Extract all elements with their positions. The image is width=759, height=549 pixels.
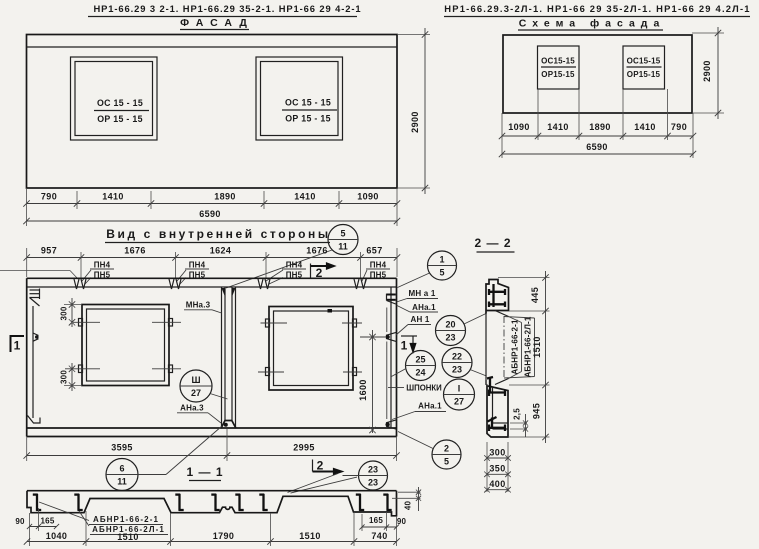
svg-text:I: I <box>458 383 461 393</box>
svg-text:945: 945 <box>532 403 542 419</box>
svg-text:5: 5 <box>444 457 449 467</box>
svg-text:657: 657 <box>366 246 382 256</box>
svg-text:ОС 15 - 15: ОС 15 - 15 <box>97 98 143 108</box>
svg-text:957: 957 <box>41 246 57 256</box>
svg-text:6590: 6590 <box>586 142 608 152</box>
svg-text:1090: 1090 <box>508 122 530 132</box>
svg-text:300: 300 <box>60 306 69 320</box>
svg-text:300: 300 <box>489 448 505 458</box>
svg-text:МНа.3: МНа.3 <box>186 301 211 310</box>
svg-text:1510: 1510 <box>532 336 542 358</box>
svg-text:ОС 15 - 15: ОС 15 - 15 <box>285 98 331 108</box>
svg-text:90: 90 <box>15 517 25 526</box>
svg-text:165: 165 <box>369 516 383 525</box>
svg-text:МН а 1: МН а 1 <box>409 289 436 298</box>
svg-text:2900: 2900 <box>410 111 420 133</box>
svg-text:ОР 15 - 15: ОР 15 - 15 <box>97 114 143 124</box>
svg-text:1676: 1676 <box>124 246 146 256</box>
svg-text:350: 350 <box>489 464 505 474</box>
svg-text:5: 5 <box>340 228 345 238</box>
svg-text:2 — 2: 2 — 2 <box>474 236 511 250</box>
svg-text:20: 20 <box>445 319 455 329</box>
svg-text:1040: 1040 <box>46 531 68 541</box>
svg-text:11: 11 <box>117 477 127 487</box>
svg-text:АБНР1-66-2-1: АБНР1-66-2-1 <box>511 319 520 375</box>
svg-text:740: 740 <box>371 531 387 541</box>
svg-text:790: 790 <box>41 192 57 202</box>
svg-text:1090: 1090 <box>357 192 379 202</box>
svg-text:24: 24 <box>415 368 425 378</box>
svg-text:Схема фасада: Схема фасада <box>519 18 666 30</box>
svg-text:1890: 1890 <box>214 192 236 202</box>
svg-text:ПН4: ПН4 <box>370 261 387 270</box>
svg-text:27: 27 <box>191 388 201 398</box>
svg-text:АНа.1: АНа.1 <box>412 303 436 312</box>
svg-text:ПН4: ПН4 <box>94 261 111 270</box>
svg-text:ОС15-15: ОС15-15 <box>541 57 575 66</box>
svg-text:2995: 2995 <box>293 443 315 453</box>
svg-text:23: 23 <box>452 365 462 375</box>
svg-text:2,5: 2,5 <box>513 408 522 420</box>
svg-text:ШПОНКИ: ШПОНКИ <box>406 384 442 393</box>
svg-text:22: 22 <box>452 351 462 361</box>
svg-text:АНа.1: АНа.1 <box>418 402 442 411</box>
svg-text:6: 6 <box>119 463 124 473</box>
svg-text:25: 25 <box>415 354 425 364</box>
svg-text:2900: 2900 <box>702 60 712 82</box>
svg-text:1790: 1790 <box>213 531 235 541</box>
svg-text:6590: 6590 <box>199 209 221 219</box>
svg-text:1410: 1410 <box>102 192 124 202</box>
svg-text:2: 2 <box>317 459 325 473</box>
svg-text:2: 2 <box>444 443 449 453</box>
svg-text:ОР15-15: ОР15-15 <box>627 70 661 79</box>
svg-text:1510: 1510 <box>117 532 139 542</box>
svg-text:ПН4: ПН4 <box>189 261 206 270</box>
svg-text:ПН4: ПН4 <box>286 261 303 270</box>
svg-text:1410: 1410 <box>294 192 316 202</box>
svg-text:АНа.3: АНа.3 <box>180 404 204 413</box>
svg-text:АБНР1-66-2-1: АБНР1-66-2-1 <box>93 515 159 524</box>
svg-text:23: 23 <box>368 478 378 488</box>
svg-text:НР1-66.29.3-2Л-1. НР1-66 29 35: НР1-66.29.3-2Л-1. НР1-66 29 35-2Л-1. НР1… <box>444 3 750 14</box>
svg-text:1510: 1510 <box>299 531 321 541</box>
svg-text:300: 300 <box>60 370 69 384</box>
svg-text:1676: 1676 <box>306 246 328 256</box>
svg-text:1 — 1: 1 — 1 <box>186 465 223 479</box>
svg-text:3595: 3595 <box>111 443 133 453</box>
svg-text:1410: 1410 <box>634 122 656 132</box>
svg-text:Вид с внутренней стороны: Вид с внутренней стороны <box>106 227 331 241</box>
svg-text:1600: 1600 <box>358 379 368 401</box>
svg-text:5: 5 <box>439 268 444 278</box>
svg-text:23: 23 <box>445 333 455 343</box>
svg-text:ОР 15 - 15: ОР 15 - 15 <box>285 114 331 124</box>
svg-text:400: 400 <box>489 479 505 489</box>
svg-text:1890: 1890 <box>589 122 611 132</box>
svg-text:445: 445 <box>530 287 540 303</box>
svg-text:1: 1 <box>439 254 444 264</box>
svg-text:40: 40 <box>404 501 413 511</box>
svg-text:23: 23 <box>368 464 378 474</box>
svg-text:ОР15-15: ОР15-15 <box>541 70 575 79</box>
svg-text:165: 165 <box>41 517 55 526</box>
svg-text:ФАСАД: ФАСАД <box>180 17 254 29</box>
svg-text:27: 27 <box>454 397 464 407</box>
svg-text:АН 1: АН 1 <box>410 315 429 324</box>
svg-text:11: 11 <box>338 242 348 252</box>
svg-text:1: 1 <box>14 339 22 353</box>
svg-text:1410: 1410 <box>547 122 569 132</box>
svg-text:НР1-66.29 3 2-1. НР1-66.29 35-: НР1-66.29 3 2-1. НР1-66.29 35-2-1. НР1-6… <box>93 3 361 14</box>
svg-text:1624: 1624 <box>210 246 232 256</box>
svg-text:1: 1 <box>401 339 409 353</box>
svg-text:ОС15-15: ОС15-15 <box>627 57 661 66</box>
svg-text:Ш: Ш <box>191 375 200 385</box>
svg-text:790: 790 <box>671 122 687 132</box>
